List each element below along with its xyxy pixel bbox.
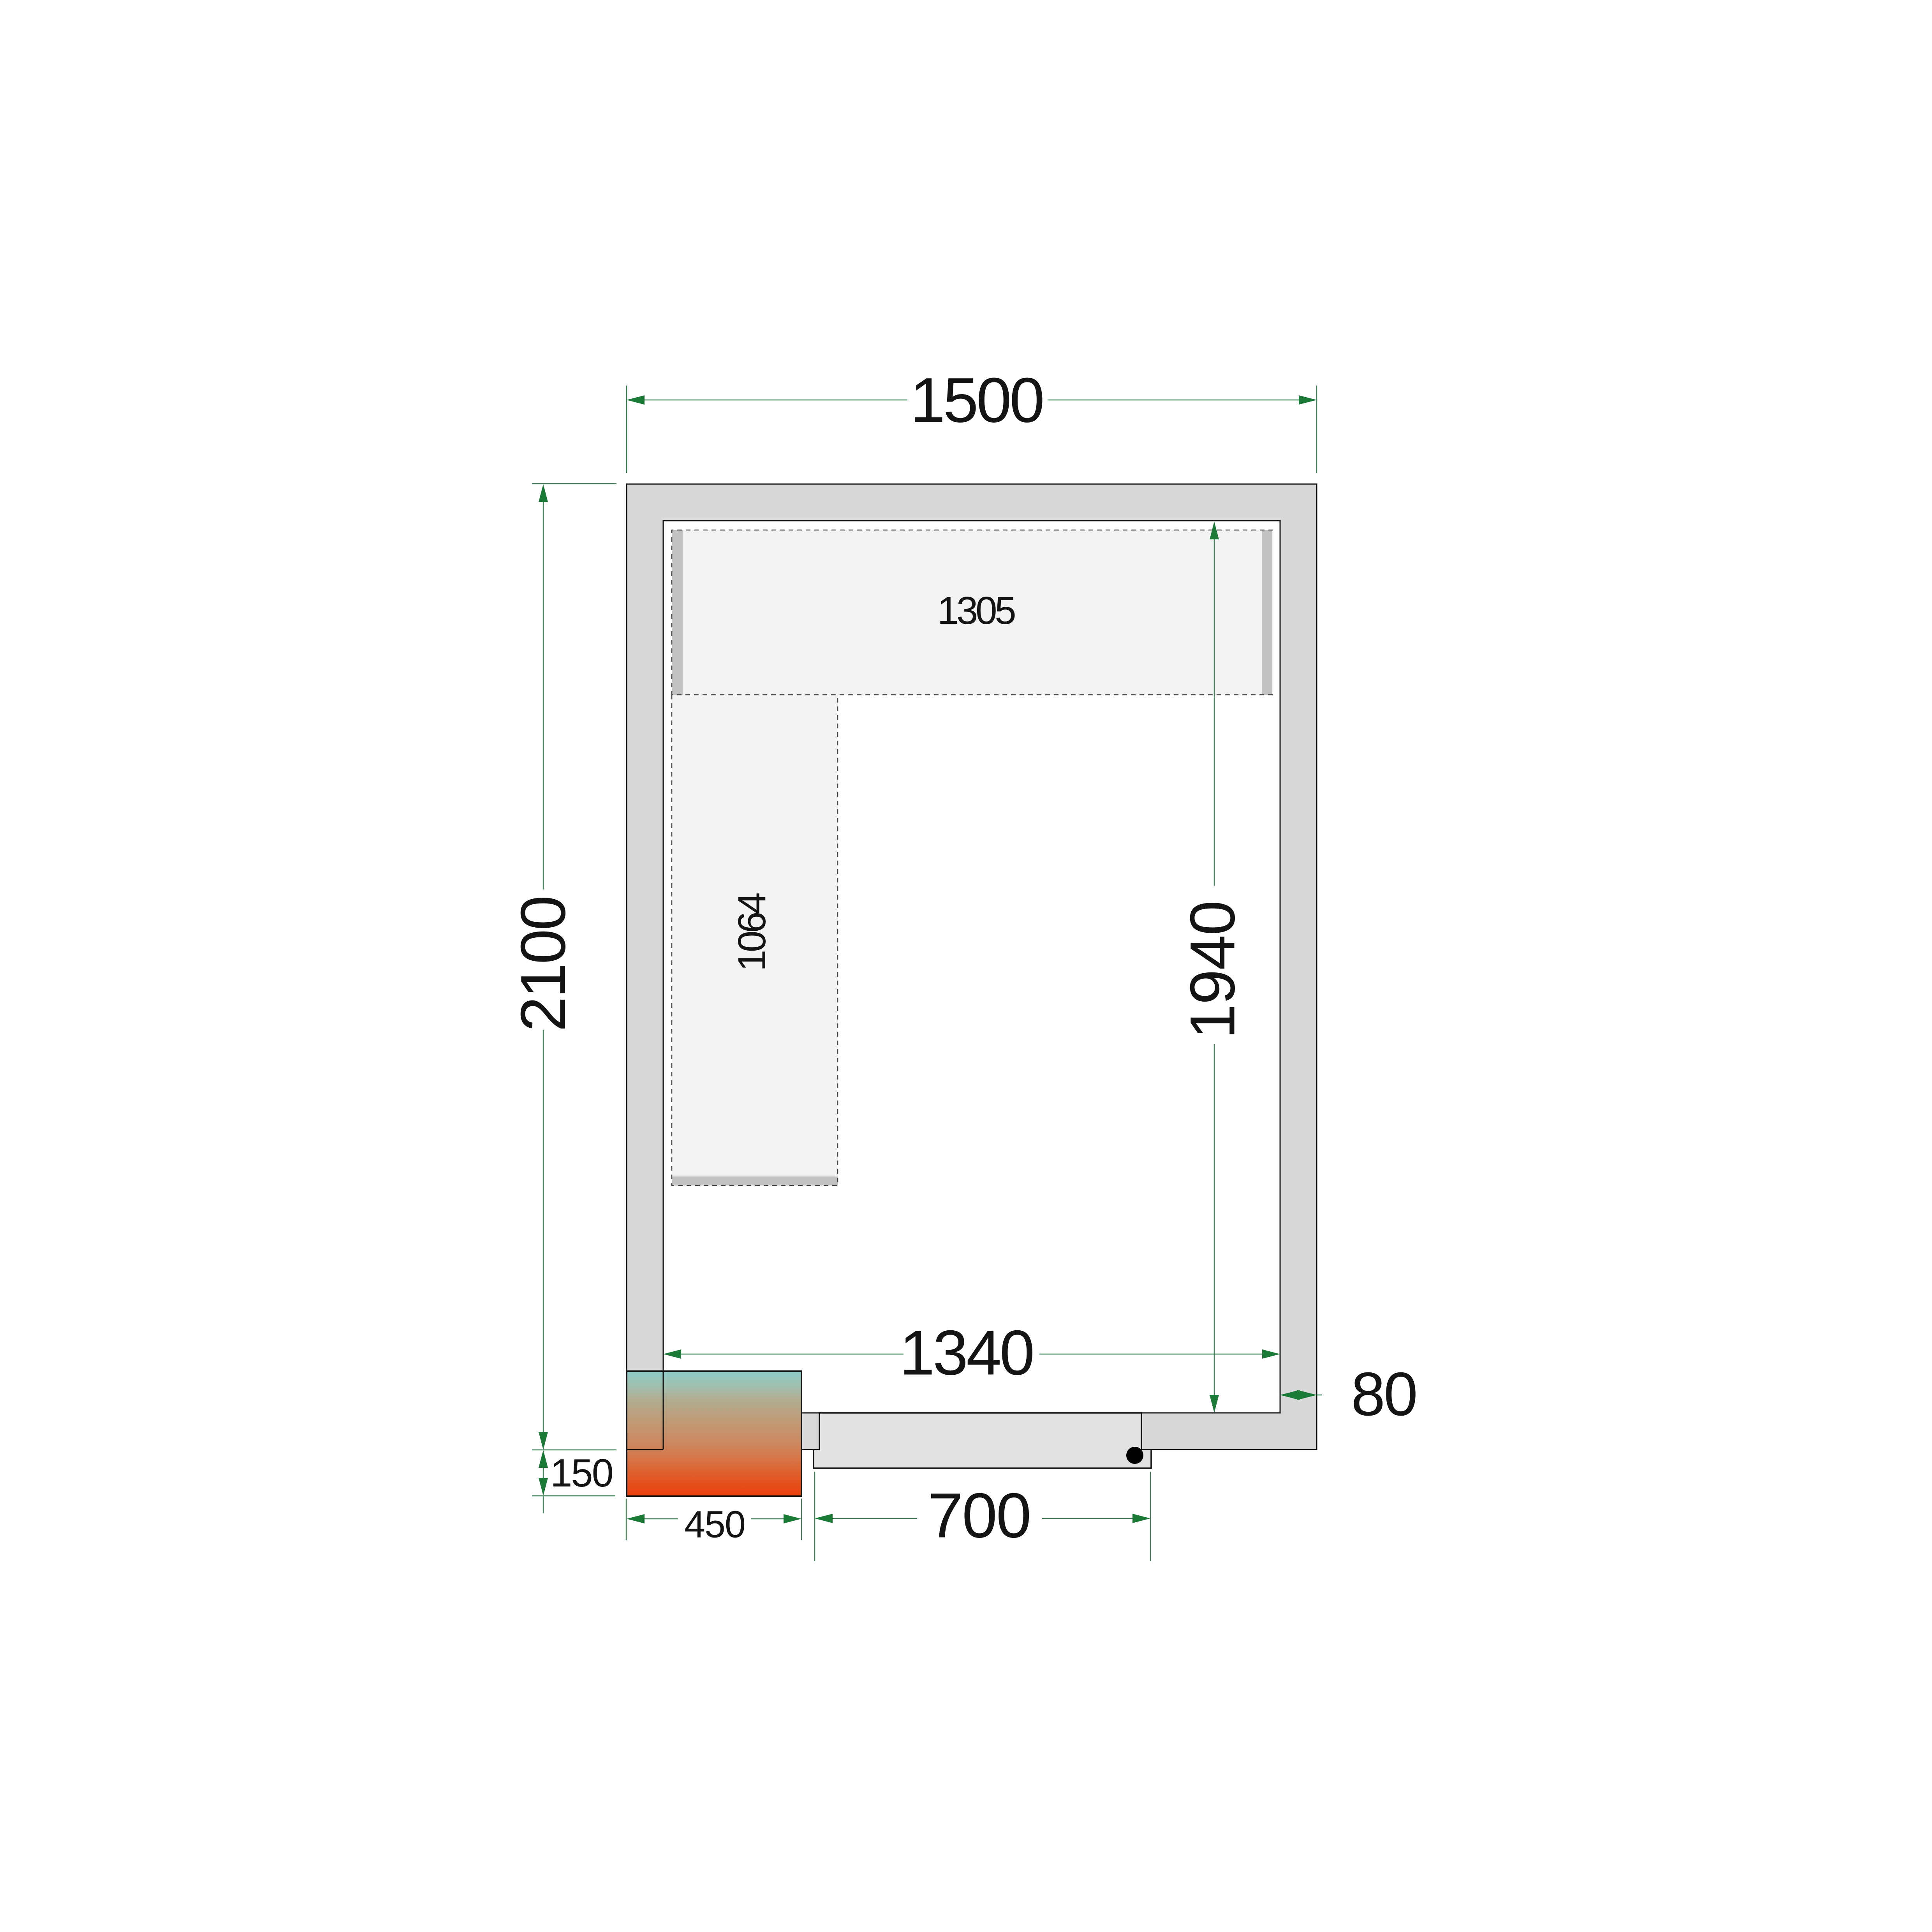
svg-text:700: 700 bbox=[928, 1480, 1030, 1551]
svg-text:1940: 1940 bbox=[1177, 901, 1248, 1039]
svg-text:150: 150 bbox=[550, 1451, 613, 1495]
svg-text:2100: 2100 bbox=[507, 897, 579, 1032]
svg-text:1064: 1064 bbox=[730, 893, 774, 971]
svg-text:1340: 1340 bbox=[900, 1317, 1033, 1388]
svg-text:80: 80 bbox=[1351, 1360, 1416, 1428]
svg-text:1500: 1500 bbox=[910, 365, 1043, 436]
svg-text:1305: 1305 bbox=[937, 589, 1015, 632]
svg-text:450: 450 bbox=[684, 1503, 745, 1546]
